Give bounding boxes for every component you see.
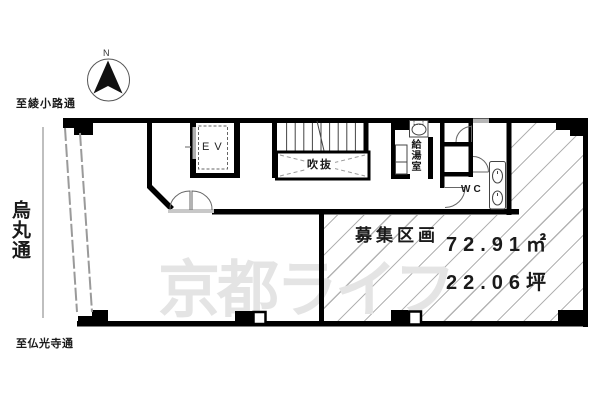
available-unit-label: 募集区画 [355,227,439,246]
top-wall-window [473,119,489,124]
glazed-storefront-wall [65,128,92,312]
toilet-rooms [440,121,512,215]
entrance-double-door [168,191,214,213]
compass-icon [88,59,130,101]
toilet-fixtures [490,162,506,210]
elevator-label: EV [202,141,227,153]
street-label-bukkoji: 至仏光寺通 [16,338,74,350]
kitchenette-label: 給湯室 [409,139,420,172]
street-label-karasuma: 烏丸通 [8,200,29,260]
entrance-diagonal-wall [149,186,172,209]
street-label-ayanokoji: 至綾小路通 [16,98,76,110]
floorplan-page: 京都ライフ [0,0,600,400]
compass-north-label: N [103,49,110,59]
unit-area-tsubo: 22.06坪 [446,272,552,294]
wc-label: WC [461,184,484,195]
unit-area-sqm: 72.91㎡ [446,234,552,256]
floorplan-drawing [0,0,600,400]
atrium-label: 吹抜 [305,159,335,171]
